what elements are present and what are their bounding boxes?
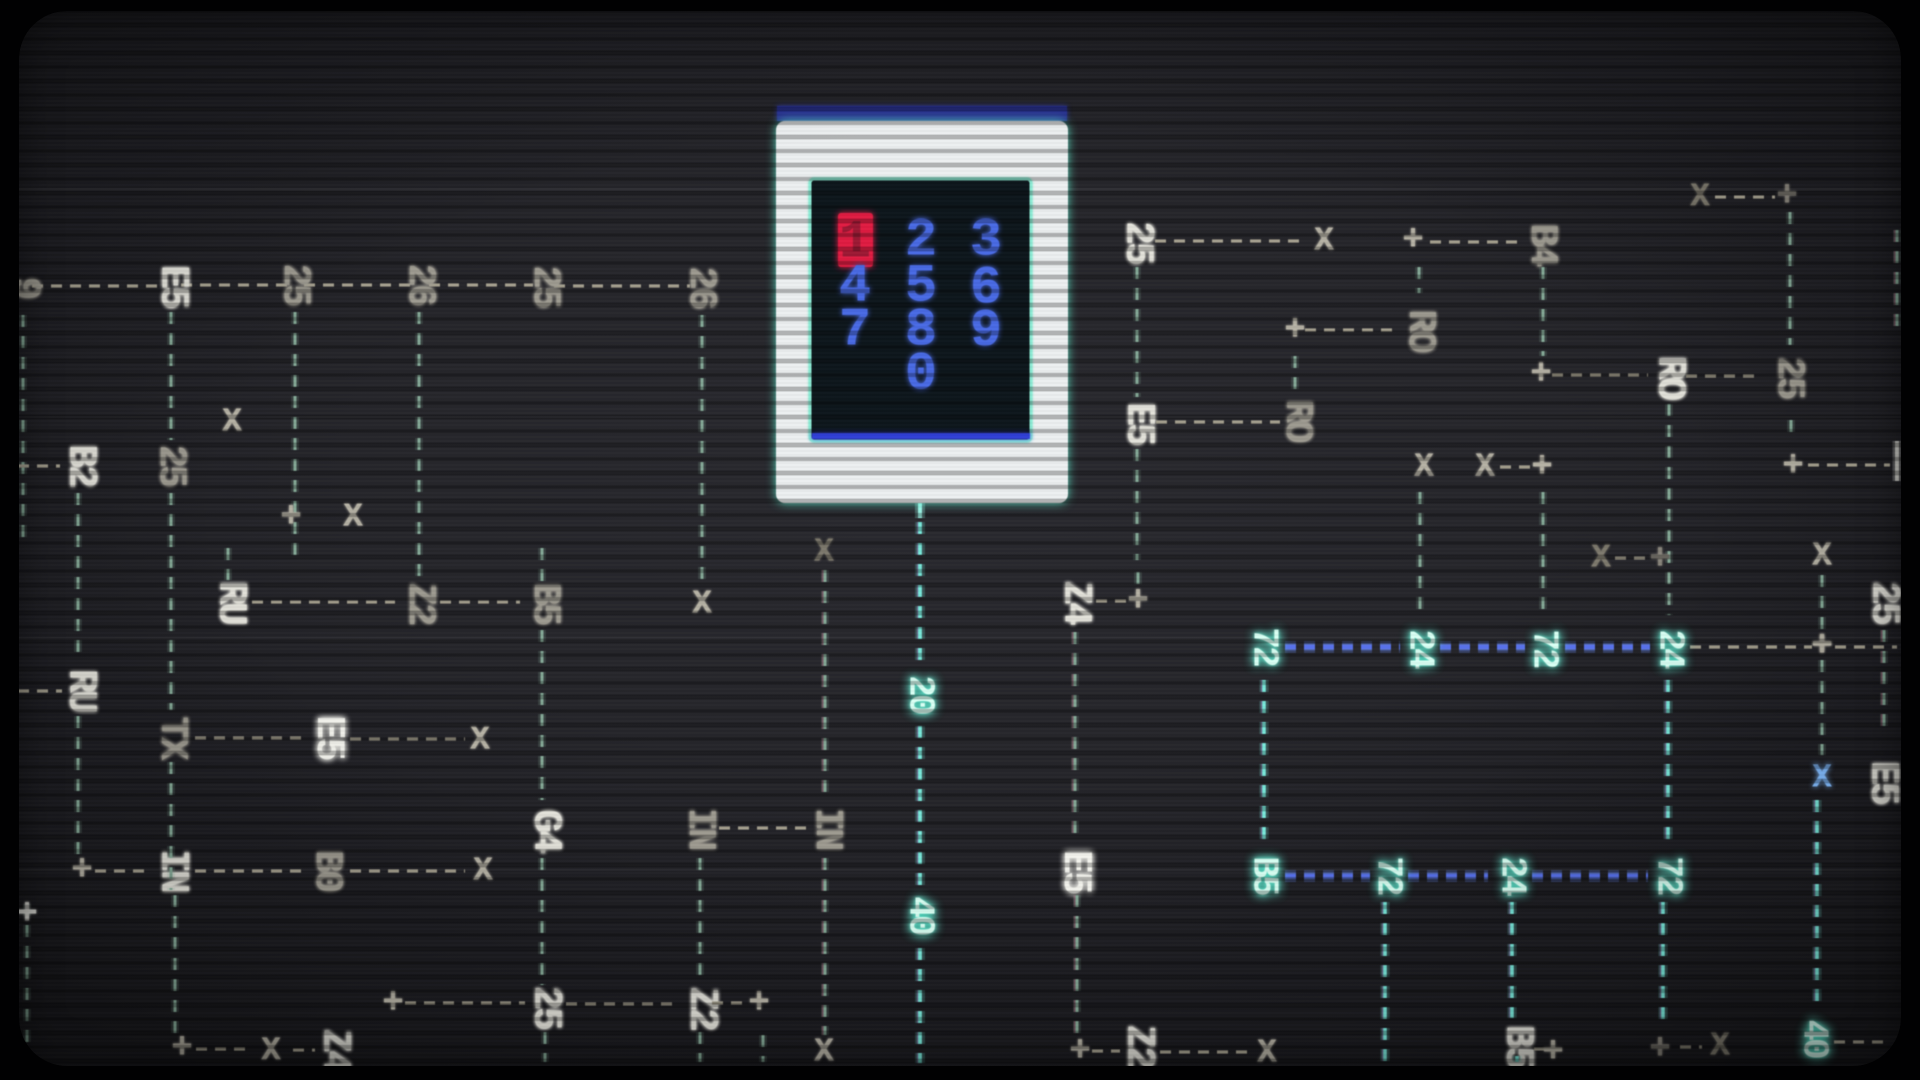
svg-text:24: 24 — [1400, 629, 1441, 669]
svg-text:+: + — [16, 894, 38, 935]
svg-text:25: 25 — [149, 445, 193, 487]
svg-text:25: 25 — [1115, 221, 1160, 264]
svg-text:X: X — [814, 1034, 834, 1071]
svg-text:+: + — [1402, 220, 1424, 261]
svg-text:72: 72 — [1368, 856, 1409, 895]
svg-text:RO: RO — [1275, 400, 1319, 443]
svg-text:X: X — [261, 1033, 281, 1070]
svg-text:7: 7 — [839, 301, 871, 362]
svg-text:X: X — [814, 534, 834, 571]
svg-text:X: X — [692, 586, 712, 623]
svg-text:X: X — [1812, 538, 1832, 575]
svg-text:X: X — [222, 404, 242, 441]
svg-text:24: 24 — [1492, 856, 1533, 896]
svg-text:72: 72 — [1244, 627, 1285, 666]
svg-text:X: X — [1690, 179, 1710, 216]
svg-text:26: 26 — [398, 264, 442, 306]
svg-text:B2: B2 — [58, 444, 103, 487]
svg-text:20: 20 — [900, 675, 941, 714]
svg-text:0: 0 — [905, 345, 937, 406]
svg-text:Z4: Z4 — [1053, 581, 1098, 625]
svg-text:25: 25 — [523, 266, 567, 308]
svg-text:TX: TX — [150, 717, 194, 761]
svg-text:RU: RU — [58, 669, 103, 712]
svg-text:72: 72 — [1648, 856, 1689, 895]
svg-text:+: + — [280, 497, 302, 538]
svg-text:E5: E5 — [1116, 402, 1161, 445]
svg-text:X: X — [1257, 1035, 1277, 1072]
svg-text:72: 72 — [1524, 629, 1565, 668]
svg-text:G4: G4 — [523, 809, 568, 853]
svg-text:+: + — [171, 1028, 193, 1069]
svg-text:E5: E5 — [150, 265, 195, 308]
svg-text:X: X — [473, 853, 493, 890]
svg-text:B5: B5 — [1244, 856, 1285, 895]
svg-text:X: X — [1591, 540, 1611, 577]
svg-text:Z2: Z2 — [398, 583, 442, 625]
svg-text:+: + — [1776, 176, 1798, 217]
svg-text:B0: B0 — [305, 850, 349, 892]
svg-text:RO: RO — [1398, 310, 1442, 353]
svg-text:40: 40 — [900, 896, 941, 935]
svg-text:24: 24 — [1650, 629, 1691, 669]
svg-text:B5: B5 — [523, 583, 567, 625]
svg-text:+: + — [1284, 310, 1306, 351]
svg-text:+: + — [1069, 1031, 1091, 1072]
svg-text:IN: IN — [805, 808, 849, 849]
svg-text:X: X — [1812, 760, 1832, 797]
svg-text:Z2: Z2 — [1116, 1025, 1161, 1068]
svg-text:+: + — [382, 983, 404, 1024]
svg-text:+: + — [748, 983, 770, 1024]
svg-text:9: 9 — [3, 277, 47, 299]
svg-text:RU: RU — [208, 581, 253, 624]
svg-text:26: 26 — [679, 267, 723, 309]
svg-text:X: X — [343, 499, 363, 536]
svg-text:+: + — [1530, 354, 1552, 395]
svg-text:+: + — [71, 850, 93, 891]
svg-text:X: X — [1710, 1028, 1730, 1065]
svg-text:RO: RO — [1647, 356, 1692, 400]
svg-text:25: 25 — [1767, 357, 1811, 399]
svg-text:25: 25 — [273, 264, 317, 306]
svg-text:X: X — [470, 722, 490, 759]
svg-text:9: 9 — [970, 302, 1002, 363]
svg-text:25: 25 — [1861, 581, 1906, 624]
svg-text:E5: E5 — [1860, 761, 1905, 804]
svg-text:Z2: Z2 — [679, 987, 724, 1030]
svg-text:+: + — [1649, 1029, 1671, 1070]
svg-text:+: + — [1531, 447, 1553, 488]
svg-text:+: + — [1127, 581, 1149, 622]
svg-text:E5: E5 — [305, 715, 351, 760]
svg-text:25: 25 — [523, 986, 568, 1029]
svg-text:X: X — [1314, 223, 1334, 260]
svg-text:X: X — [1414, 449, 1434, 486]
svg-text:+: + — [1811, 626, 1833, 667]
svg-text:B4: B4 — [1520, 224, 1564, 267]
svg-text:+: + — [1649, 539, 1671, 580]
svg-text:+: + — [1782, 446, 1804, 487]
svg-text:IN: IN — [678, 808, 722, 849]
svg-text:40: 40 — [1794, 1019, 1835, 1058]
svg-text:+: + — [1542, 1032, 1564, 1073]
svg-text:E5: E5 — [1052, 849, 1098, 894]
svg-text:X: X — [1475, 449, 1495, 486]
svg-text:Z4: Z4 — [312, 1029, 357, 1073]
